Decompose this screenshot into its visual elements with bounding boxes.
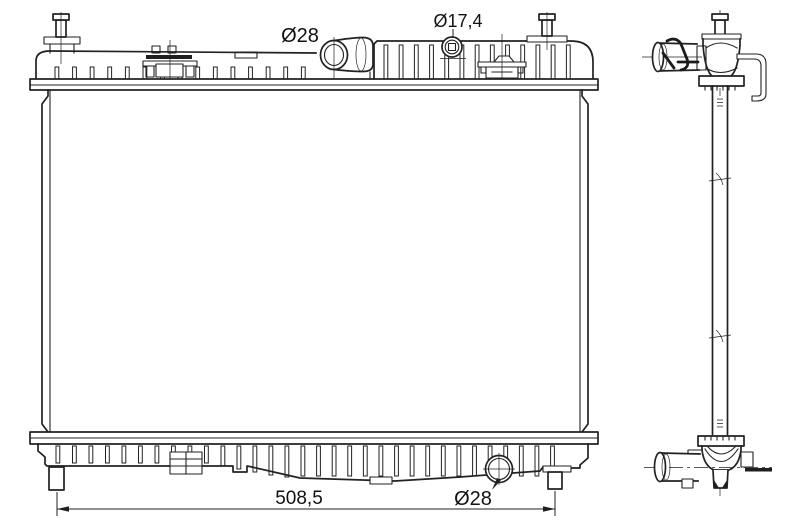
rib — [566, 45, 570, 79]
left-clip-bracket — [143, 40, 197, 82]
rib — [536, 45, 540, 79]
side-bottom-bracket — [741, 452, 772, 472]
rib — [56, 446, 60, 463]
rib — [473, 446, 477, 476]
side-top-tank — [642, 10, 766, 101]
bottom-tank — [30, 432, 598, 490]
side-inlet-pipe — [642, 39, 706, 71]
rib — [213, 67, 217, 79]
side-top-collar — [699, 76, 744, 90]
side-core-column — [709, 86, 731, 436]
bottom-clip-bracket — [170, 452, 202, 474]
rib — [89, 446, 93, 463]
rib — [73, 67, 77, 79]
side-outlet-pipe — [655, 450, 703, 488]
rib — [90, 67, 94, 79]
mounting-pin-top-left — [44, 12, 80, 64]
rib — [108, 67, 112, 79]
rib — [55, 67, 59, 79]
mounting-pin-top-right — [527, 12, 567, 50]
core — [42, 90, 588, 436]
rib — [249, 67, 253, 79]
rib — [332, 446, 336, 476]
top-tank — [30, 12, 598, 90]
bottom-tank-ribs-right — [301, 446, 554, 476]
rib — [155, 446, 159, 463]
side-bottom-collar — [698, 436, 744, 446]
rib — [196, 67, 200, 79]
side-drain-spout — [713, 470, 728, 496]
rib — [317, 446, 321, 476]
rib — [106, 446, 110, 463]
rib — [457, 446, 461, 476]
mounting-pin-bottom-right — [543, 466, 571, 489]
rib — [231, 67, 235, 79]
rib — [125, 67, 129, 79]
front-view: Ø28 Ø17,4 508,5 Ø28 — [30, 11, 598, 516]
core-width-label: 508,5 — [275, 488, 323, 509]
rib — [426, 446, 430, 476]
rib — [410, 446, 414, 476]
side-pin-plate — [702, 34, 741, 39]
rib — [237, 446, 241, 469]
rib — [221, 446, 225, 466]
rib — [384, 45, 388, 79]
bottom-tab — [370, 477, 392, 484]
rib — [139, 446, 143, 463]
arrow-right — [543, 506, 555, 512]
dimension-inlet-diameter: Ø28 — [281, 25, 319, 47]
rib — [395, 446, 399, 476]
rib — [414, 45, 418, 79]
bottom-flange — [30, 432, 598, 444]
side-bottom-tank — [644, 436, 772, 496]
top-flange — [30, 79, 598, 90]
inlet-pipe-front — [321, 37, 374, 80]
rib — [379, 446, 383, 476]
inlet-diameter-label: Ø28 — [281, 25, 319, 47]
bottom-tank-outline — [38, 444, 543, 481]
rib — [285, 446, 289, 477]
rib — [301, 446, 305, 476]
rib — [363, 446, 367, 476]
side-view — [642, 10, 772, 496]
rib — [441, 446, 445, 476]
rib — [301, 67, 305, 79]
rib — [73, 446, 77, 463]
dimension-drain-diameter: Ø28 — [454, 478, 501, 510]
rib — [122, 446, 126, 463]
pipe-clip — [682, 479, 693, 488]
rib — [399, 45, 403, 79]
radiator-technical-drawing: Ø28 Ø17,4 508,5 Ø28 — [0, 0, 800, 531]
rib — [284, 67, 288, 79]
rib — [205, 446, 209, 463]
rib — [348, 446, 352, 476]
rib — [551, 45, 555, 79]
rib — [430, 45, 434, 79]
dimension-filler-diameter: Ø17,4 — [433, 11, 482, 37]
arrow-left — [57, 506, 69, 512]
drawing-canvas: Ø28 Ø17,4 508,5 Ø28 — [0, 0, 800, 531]
filler-diameter-label: Ø17,4 — [433, 11, 482, 31]
top-tank-ribs-right — [384, 45, 570, 79]
rib — [266, 67, 270, 79]
drain-diameter-label: Ø28 — [454, 488, 492, 510]
side-mounting-pin-top — [712, 14, 728, 35]
mounting-pin-bottom-left — [49, 467, 64, 490]
